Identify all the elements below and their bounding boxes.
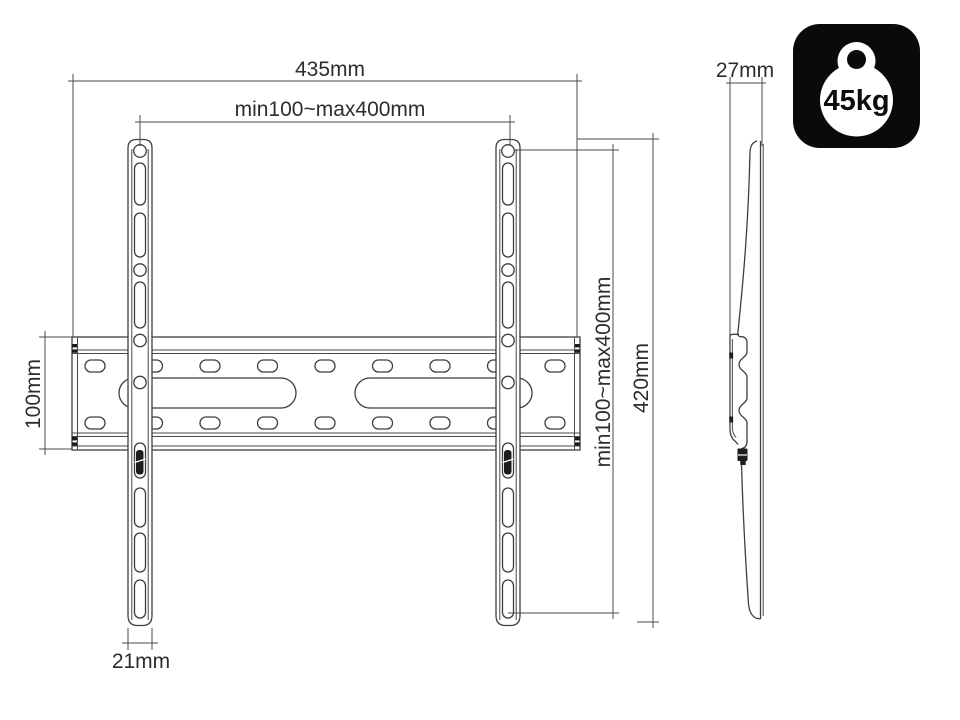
left-rail bbox=[128, 140, 152, 626]
side-view: 27mm bbox=[716, 59, 774, 619]
dim-rail-width: 21mm bbox=[112, 628, 170, 673]
plate-slot bbox=[545, 417, 565, 429]
dim-depth: 27mm bbox=[716, 59, 774, 337]
right-rail bbox=[496, 140, 520, 626]
dim-hole-pattern-height-label: min100~max400mm bbox=[592, 277, 615, 468]
plate-slot bbox=[315, 417, 335, 429]
dim-hole-pattern-width-label: min100~max400mm bbox=[235, 98, 426, 121]
max-load-badge: 45kg bbox=[793, 24, 920, 148]
dim-total-width-label: 435mm bbox=[295, 58, 365, 81]
plate-slot bbox=[85, 417, 105, 429]
side-plate-clip bbox=[729, 353, 733, 359]
side-rail-hook-profile bbox=[738, 332, 747, 449]
dim-depth-label: 27mm bbox=[716, 59, 774, 82]
dim-bracket-height: 420mm bbox=[577, 133, 659, 628]
plate-slot bbox=[200, 360, 220, 372]
side-front-curve-upper bbox=[738, 141, 757, 332]
dim-hole-pattern-height: min100~max400mm bbox=[508, 144, 619, 619]
side-locking-screw-nub bbox=[740, 461, 745, 465]
dim-rail-width-label: 21mm bbox=[112, 650, 170, 673]
plate-slot bbox=[258, 417, 278, 429]
drawing-canvas: 435mm min100~max400mm 100mm 21mm bbox=[0, 0, 960, 720]
max-load-label: 45kg bbox=[823, 85, 889, 117]
plate-slot bbox=[200, 417, 220, 429]
plate-slot bbox=[545, 360, 565, 372]
plate-slot bbox=[373, 360, 393, 372]
plate-screw-slots-bottom-row bbox=[85, 417, 565, 429]
plate-slot bbox=[258, 360, 278, 372]
tv-mount-technical-drawing: 435mm min100~max400mm 100mm 21mm bbox=[0, 0, 960, 720]
plate-slot bbox=[430, 417, 450, 429]
side-front-curve-lower bbox=[742, 465, 761, 620]
plate-slot bbox=[85, 360, 105, 372]
dim-plate-height: 100mm bbox=[22, 331, 72, 455]
dim-plate-height-label: 100mm bbox=[22, 359, 45, 429]
plate-slot bbox=[315, 360, 335, 372]
plate-screw-slots-top-row bbox=[85, 360, 565, 372]
dim-hole-pattern-width: min100~max400mm bbox=[135, 98, 515, 146]
side-plate-clip bbox=[729, 417, 733, 423]
dimension-annotations: 435mm min100~max400mm 100mm 21mm bbox=[22, 58, 659, 673]
dim-bracket-height-label: 420mm bbox=[630, 343, 653, 413]
plate-slot bbox=[373, 417, 393, 429]
plate-slot bbox=[430, 360, 450, 372]
